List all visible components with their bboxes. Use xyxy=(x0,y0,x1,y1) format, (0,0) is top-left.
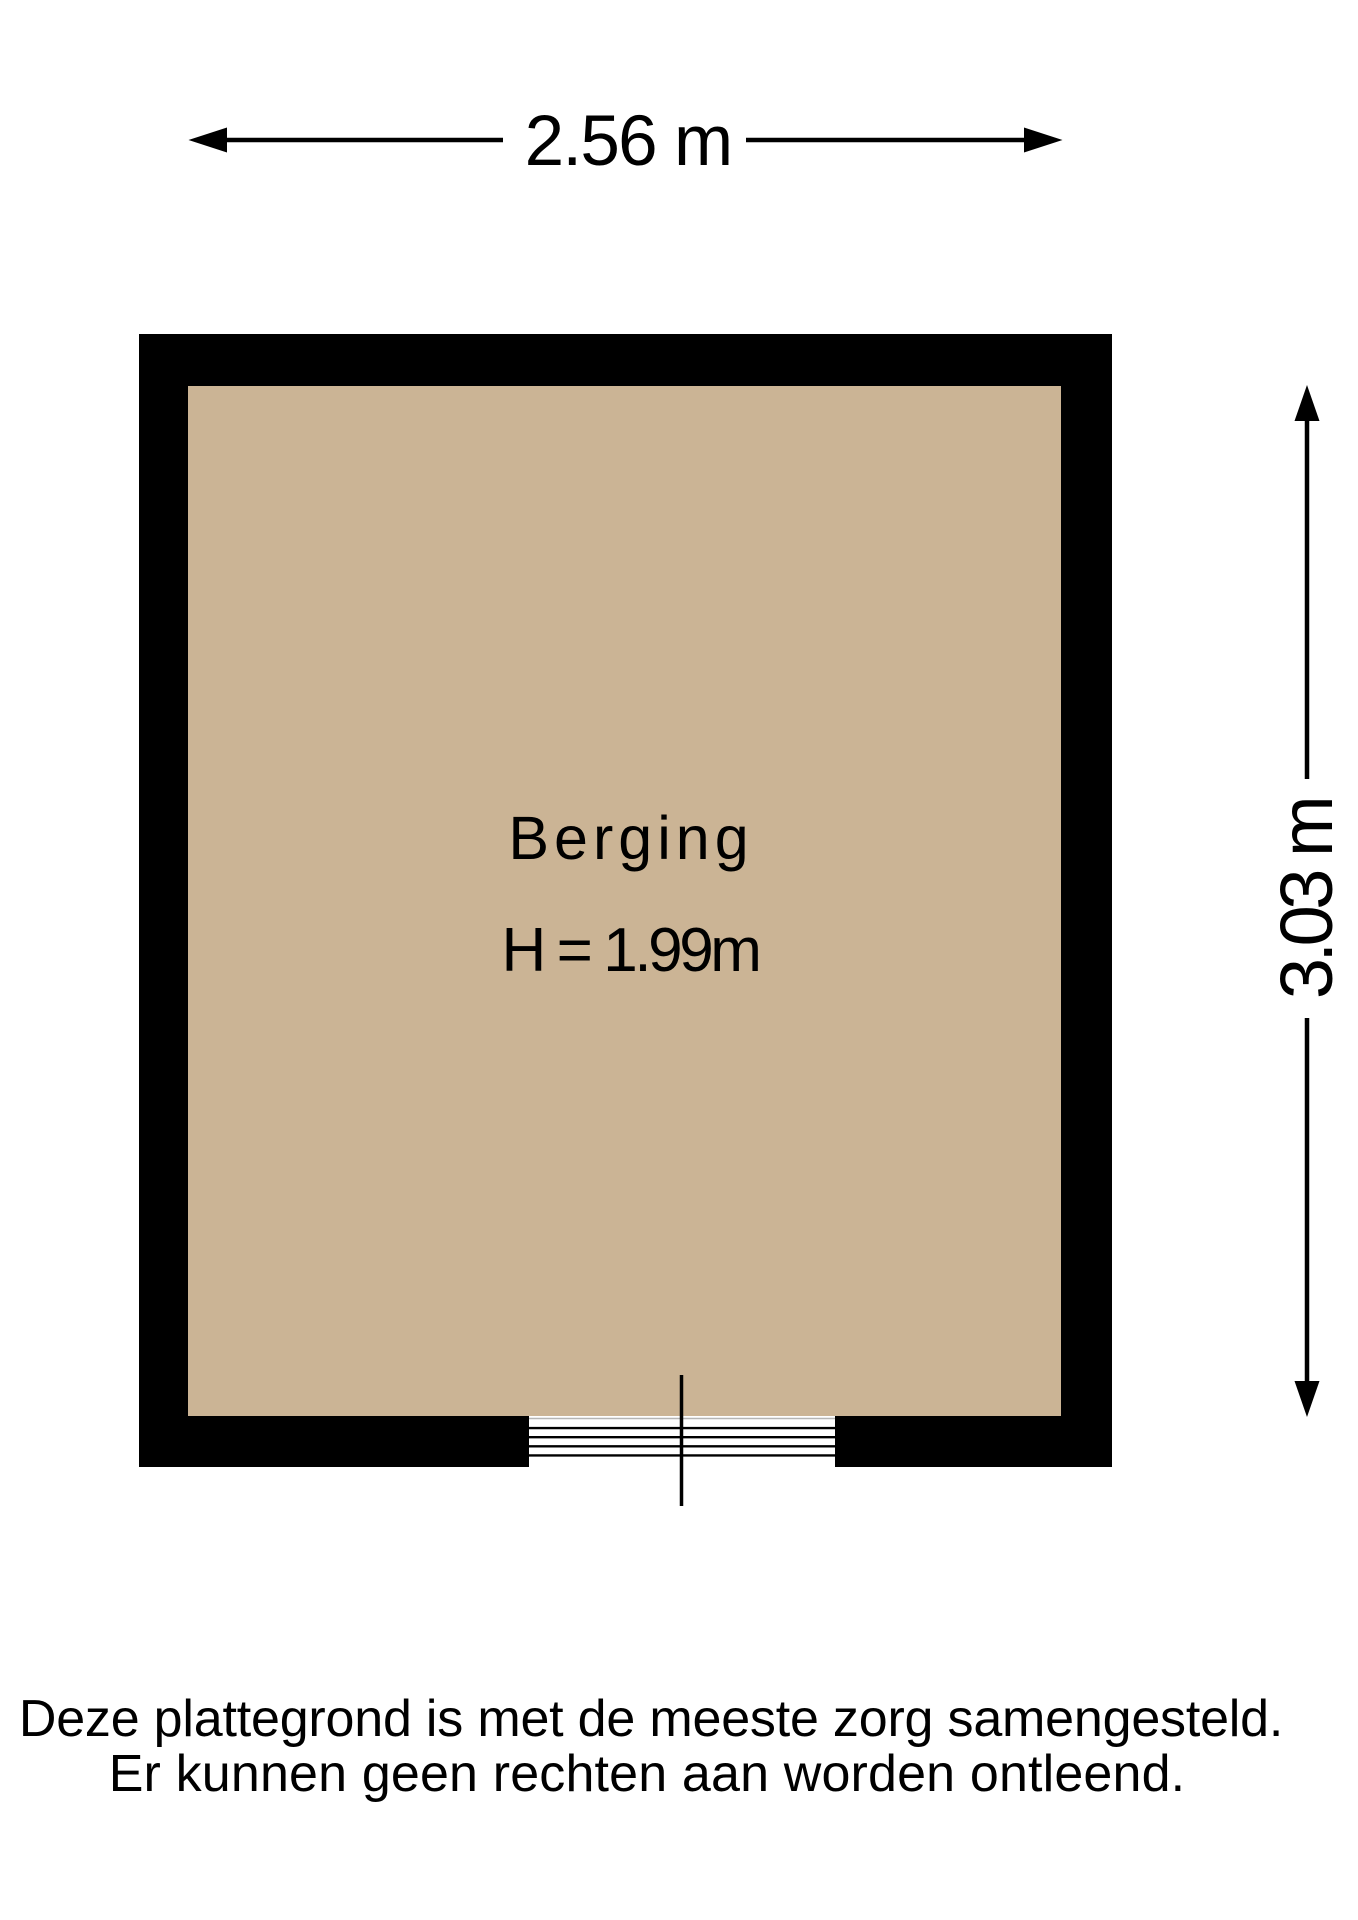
svg-text:Deze plattegrond is met de mee: Deze plattegrond is met de meeste zorg s… xyxy=(19,1690,1283,1748)
svg-text:H = 1.99m: H = 1.99m xyxy=(501,916,758,985)
svg-text:3.03 m: 3.03 m xyxy=(1265,800,1348,999)
svg-text:2.56 m: 2.56 m xyxy=(525,102,732,181)
svg-text:Berging: Berging xyxy=(508,804,753,872)
svg-text:Er kunnen geen rechten aan wor: Er kunnen geen rechten aan worden ontlee… xyxy=(109,1745,1186,1803)
